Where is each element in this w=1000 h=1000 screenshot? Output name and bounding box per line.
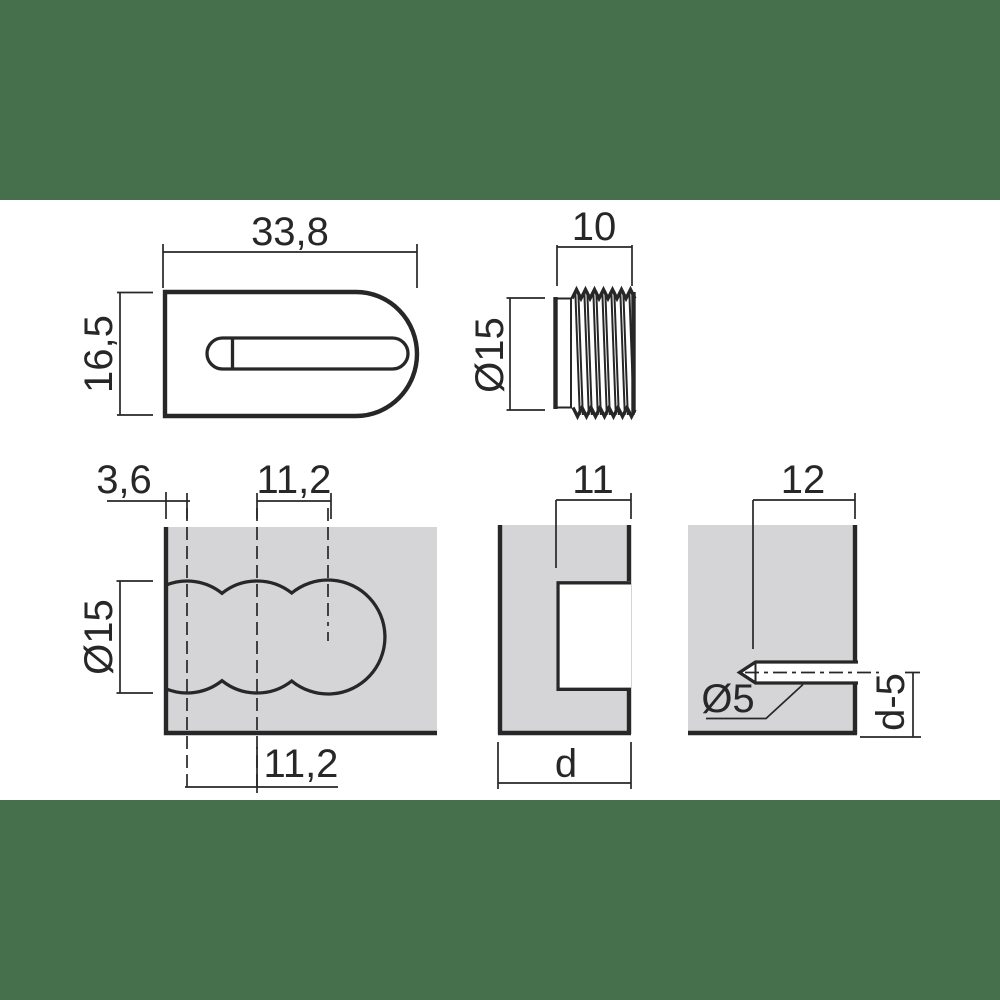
dim-thread-diameter-label: Ø15 xyxy=(468,317,512,393)
dim-cam-height-label: 16,5 xyxy=(77,315,121,393)
view-cam-front: 10 Ø15 xyxy=(468,205,635,417)
dim-center-offset-label: d-5 xyxy=(869,673,913,731)
view-cam-side: 33,8 16,5 xyxy=(77,210,417,416)
view-panel-section: 11 d xyxy=(498,458,631,789)
cam-outline xyxy=(165,292,417,416)
dim-line-cam-height xyxy=(117,293,153,416)
notch-cutout xyxy=(556,581,631,691)
dim-bore-diameter-label: Ø15 xyxy=(77,599,121,675)
dim-notch-width-label: 11 xyxy=(572,458,614,502)
dim-pilot-diameter-label: Ø5 xyxy=(701,677,754,721)
dim-edge-distance-label: 3,6 xyxy=(96,458,152,502)
view-panel-edge: 12 Ø5 d-5 xyxy=(688,458,921,737)
dim-pitch-upper-label: 11,2 xyxy=(257,458,332,502)
dim-line-thread-depth xyxy=(557,245,632,286)
dim-panel-thickness-label: d xyxy=(555,742,577,786)
view-panel-plan: 3,6 11,2 Ø15 11,2 xyxy=(77,458,437,793)
thread-flanks xyxy=(575,291,634,415)
page: 33,8 16,5 10 Ø15 xyxy=(0,0,1000,1000)
dim-cam-width-label: 33,8 xyxy=(251,210,329,254)
panel-plan-material xyxy=(164,527,437,735)
technical-drawing: 33,8 16,5 10 Ø15 xyxy=(0,0,1000,1000)
dim-line-bore-diameter xyxy=(117,581,154,693)
dim-drill-depth-label: 12 xyxy=(781,458,826,502)
dim-thread-depth-label: 10 xyxy=(572,205,617,249)
dim-pitch-lower-label: 11,2 xyxy=(264,742,339,786)
dim-line-thread-diameter xyxy=(507,298,546,410)
cam-slot xyxy=(207,338,408,369)
